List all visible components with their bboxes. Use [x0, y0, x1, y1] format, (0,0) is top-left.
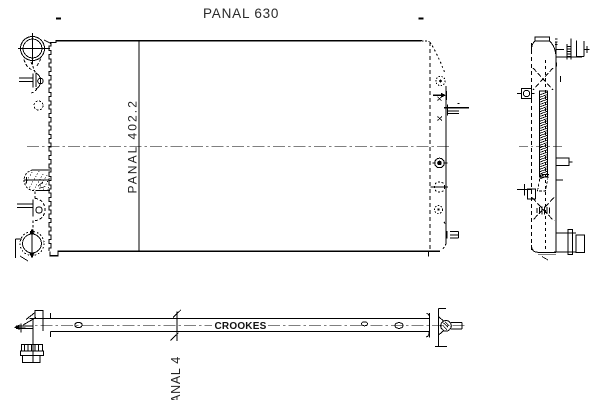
svg-text:PANAL 630: PANAL 630	[203, 6, 279, 21]
svg-text:PANAL 402.2: PANAL 402.2	[126, 99, 140, 193]
svg-text:CROOKES: CROOKES	[215, 321, 267, 332]
svg-text:PANAL 4: PANAL 4	[169, 356, 183, 400]
